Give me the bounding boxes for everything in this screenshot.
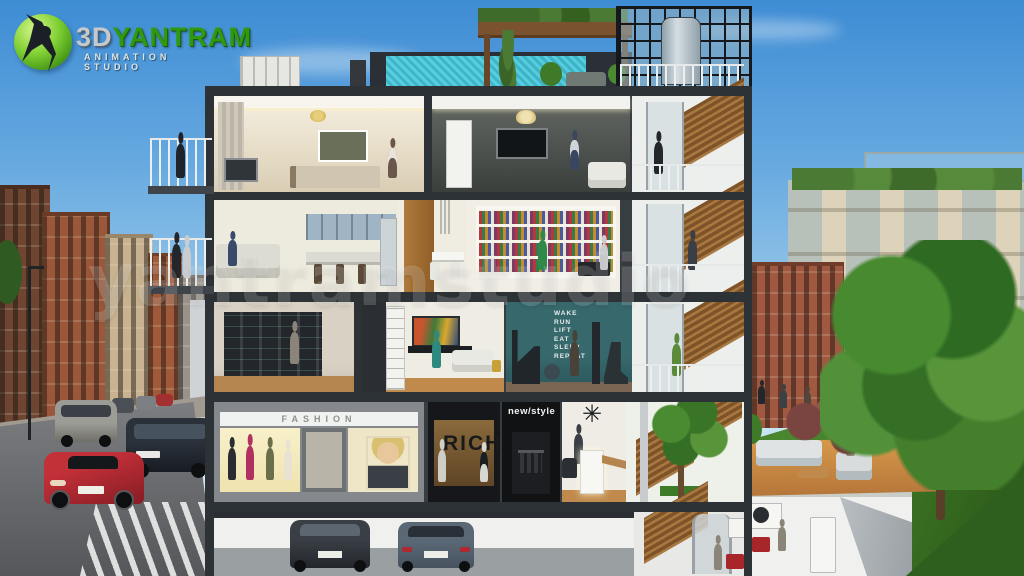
pendant-light xyxy=(440,200,452,234)
reception-office: ✳ xyxy=(562,402,626,502)
technician xyxy=(714,544,722,570)
logo-dancer-icon xyxy=(12,10,84,80)
bedroom-ceiling xyxy=(214,96,428,108)
right-structural-wall xyxy=(744,86,752,576)
treadmill xyxy=(604,342,628,384)
gym-word: LIFT xyxy=(554,327,586,336)
fashion-sign: FASHION xyxy=(220,412,418,426)
wall-tv xyxy=(496,128,548,159)
basement-utility xyxy=(634,512,746,576)
red-sports-car xyxy=(44,452,144,504)
office-chair xyxy=(562,458,577,478)
hanging-vine xyxy=(498,30,518,90)
cellar-wood-floor xyxy=(214,376,354,392)
balcony-floor4 xyxy=(150,126,212,194)
retaining-wall xyxy=(840,497,912,576)
mannequin xyxy=(228,448,236,480)
gold-stool xyxy=(492,360,501,372)
building-cutaway-render: WAKE RUN LIFT EAT SLEEP REPEAT FASHION R… xyxy=(0,0,1024,576)
parked-car xyxy=(156,394,173,406)
sedan-wheel xyxy=(459,561,470,572)
balcony-slab xyxy=(148,186,214,194)
yantram-logo: 3DYANTRAM ANIMATION STUDIO xyxy=(12,8,212,80)
logo-subtitle: ANIMATION STUDIO xyxy=(84,52,212,72)
fashion-store: FASHION xyxy=(214,402,424,502)
mannequin xyxy=(266,448,274,480)
mannequin xyxy=(438,450,446,482)
suv-wheel xyxy=(191,463,206,478)
terrace-plant xyxy=(540,62,562,86)
hvac-unit xyxy=(748,503,782,529)
person-in-gym xyxy=(570,342,579,376)
roof-slab xyxy=(205,86,752,96)
rich-store: RICH xyxy=(428,402,500,502)
sedan-rear-window xyxy=(408,526,464,537)
suv-windows xyxy=(134,424,206,439)
indoor-tree-canopy xyxy=(646,398,730,472)
sedan-taillight xyxy=(402,547,412,552)
bed xyxy=(290,166,380,188)
sportscar-headlight xyxy=(50,480,66,486)
logo-wordmark: 3DYANTRAM xyxy=(76,22,252,53)
rich-sign: RICH xyxy=(443,432,502,456)
floor-slab xyxy=(205,192,752,200)
maintenance-worker xyxy=(778,527,786,551)
gym-word: EAT xyxy=(554,336,586,345)
parked-suv-rear xyxy=(290,520,370,568)
sedan-taillight xyxy=(460,547,470,552)
white-sofa xyxy=(588,162,626,188)
rich-gold-wall: RICH xyxy=(434,420,494,486)
bedroom-chandelier xyxy=(310,110,326,122)
mannequin xyxy=(246,446,254,480)
bedroom-tv xyxy=(224,158,258,182)
ground-slab xyxy=(205,502,752,512)
pedestrian xyxy=(758,386,765,404)
fashion-display-window xyxy=(220,428,300,492)
garden-basement-cut xyxy=(744,492,912,576)
landing-railing xyxy=(632,364,744,392)
livingroom-floor4 xyxy=(432,96,630,192)
roof-chimney xyxy=(350,60,366,88)
fashion-poster-window xyxy=(348,428,418,492)
utility-cabinet xyxy=(810,517,836,573)
basement-garage xyxy=(214,512,634,576)
white-reception-desk xyxy=(580,450,604,494)
crosswalk xyxy=(80,502,215,576)
spider-chandelier: ✳ xyxy=(574,404,610,426)
sportscar-plate xyxy=(78,486,104,494)
suv-rear-window xyxy=(300,524,360,536)
grey-minivan xyxy=(55,400,117,442)
streetlight-arm xyxy=(28,266,44,269)
gym-machine xyxy=(512,330,540,384)
garage-ceiling xyxy=(214,512,634,518)
logo-name-text: YANTRAM xyxy=(113,22,253,52)
living-ceiling-cove xyxy=(432,96,630,109)
newstyle-store: new/style xyxy=(502,402,560,502)
suv-wheel xyxy=(294,560,306,572)
mannequin xyxy=(480,452,488,482)
man-on-balcony xyxy=(176,144,185,178)
red-boiler-pump xyxy=(752,537,770,552)
bedroom-wall-art xyxy=(318,130,368,162)
van-wheel xyxy=(99,435,111,447)
man-in-cellar xyxy=(290,332,299,364)
mannequin xyxy=(284,450,292,480)
sedan-rear-plate xyxy=(424,551,448,558)
van-wheel xyxy=(61,435,73,447)
man-in-study xyxy=(432,340,441,368)
suv-wheel xyxy=(354,560,366,572)
red-pump xyxy=(726,554,744,569)
parked-car xyxy=(136,396,156,410)
pergola-post xyxy=(484,34,490,90)
parked-sedan-rear xyxy=(398,522,474,568)
wood-counter xyxy=(602,455,626,469)
sportscar-wheel xyxy=(50,490,70,510)
sportscar-windshield xyxy=(68,456,118,469)
woman-in-livingroom xyxy=(570,140,579,170)
roof-bulkhead xyxy=(240,56,300,90)
living-chandelier xyxy=(516,110,536,124)
studio-watermark: yantramstudio xyxy=(88,240,692,322)
partition-wall xyxy=(424,96,432,192)
streetlight-pole xyxy=(28,268,31,440)
bedroom-floor4 xyxy=(214,96,428,192)
floor-slab xyxy=(205,392,752,402)
hvac-fan xyxy=(753,507,769,523)
sportscar-wheel xyxy=(114,490,134,510)
green-roof-terrace xyxy=(792,168,1022,190)
van-windows xyxy=(61,405,111,417)
sedan-wheel xyxy=(402,561,413,572)
gym-rack xyxy=(592,322,600,384)
woman-in-bedroom xyxy=(388,148,397,178)
fashion-doorway xyxy=(302,428,346,492)
white-door xyxy=(446,120,472,188)
exercise-ball xyxy=(544,364,560,380)
study-sofa xyxy=(452,350,494,372)
stair-core-floor4 xyxy=(632,96,744,192)
logo-3d-text: 3D xyxy=(76,22,113,52)
fashion-model-poster xyxy=(366,436,410,490)
suv-rear-plate xyxy=(318,551,342,558)
newstyle-sign: new/style xyxy=(508,406,554,417)
hanging-clothes xyxy=(520,453,542,473)
atrium-ground xyxy=(626,402,746,502)
newstyle-interior xyxy=(512,432,550,494)
large-garden-tree xyxy=(820,240,1024,490)
